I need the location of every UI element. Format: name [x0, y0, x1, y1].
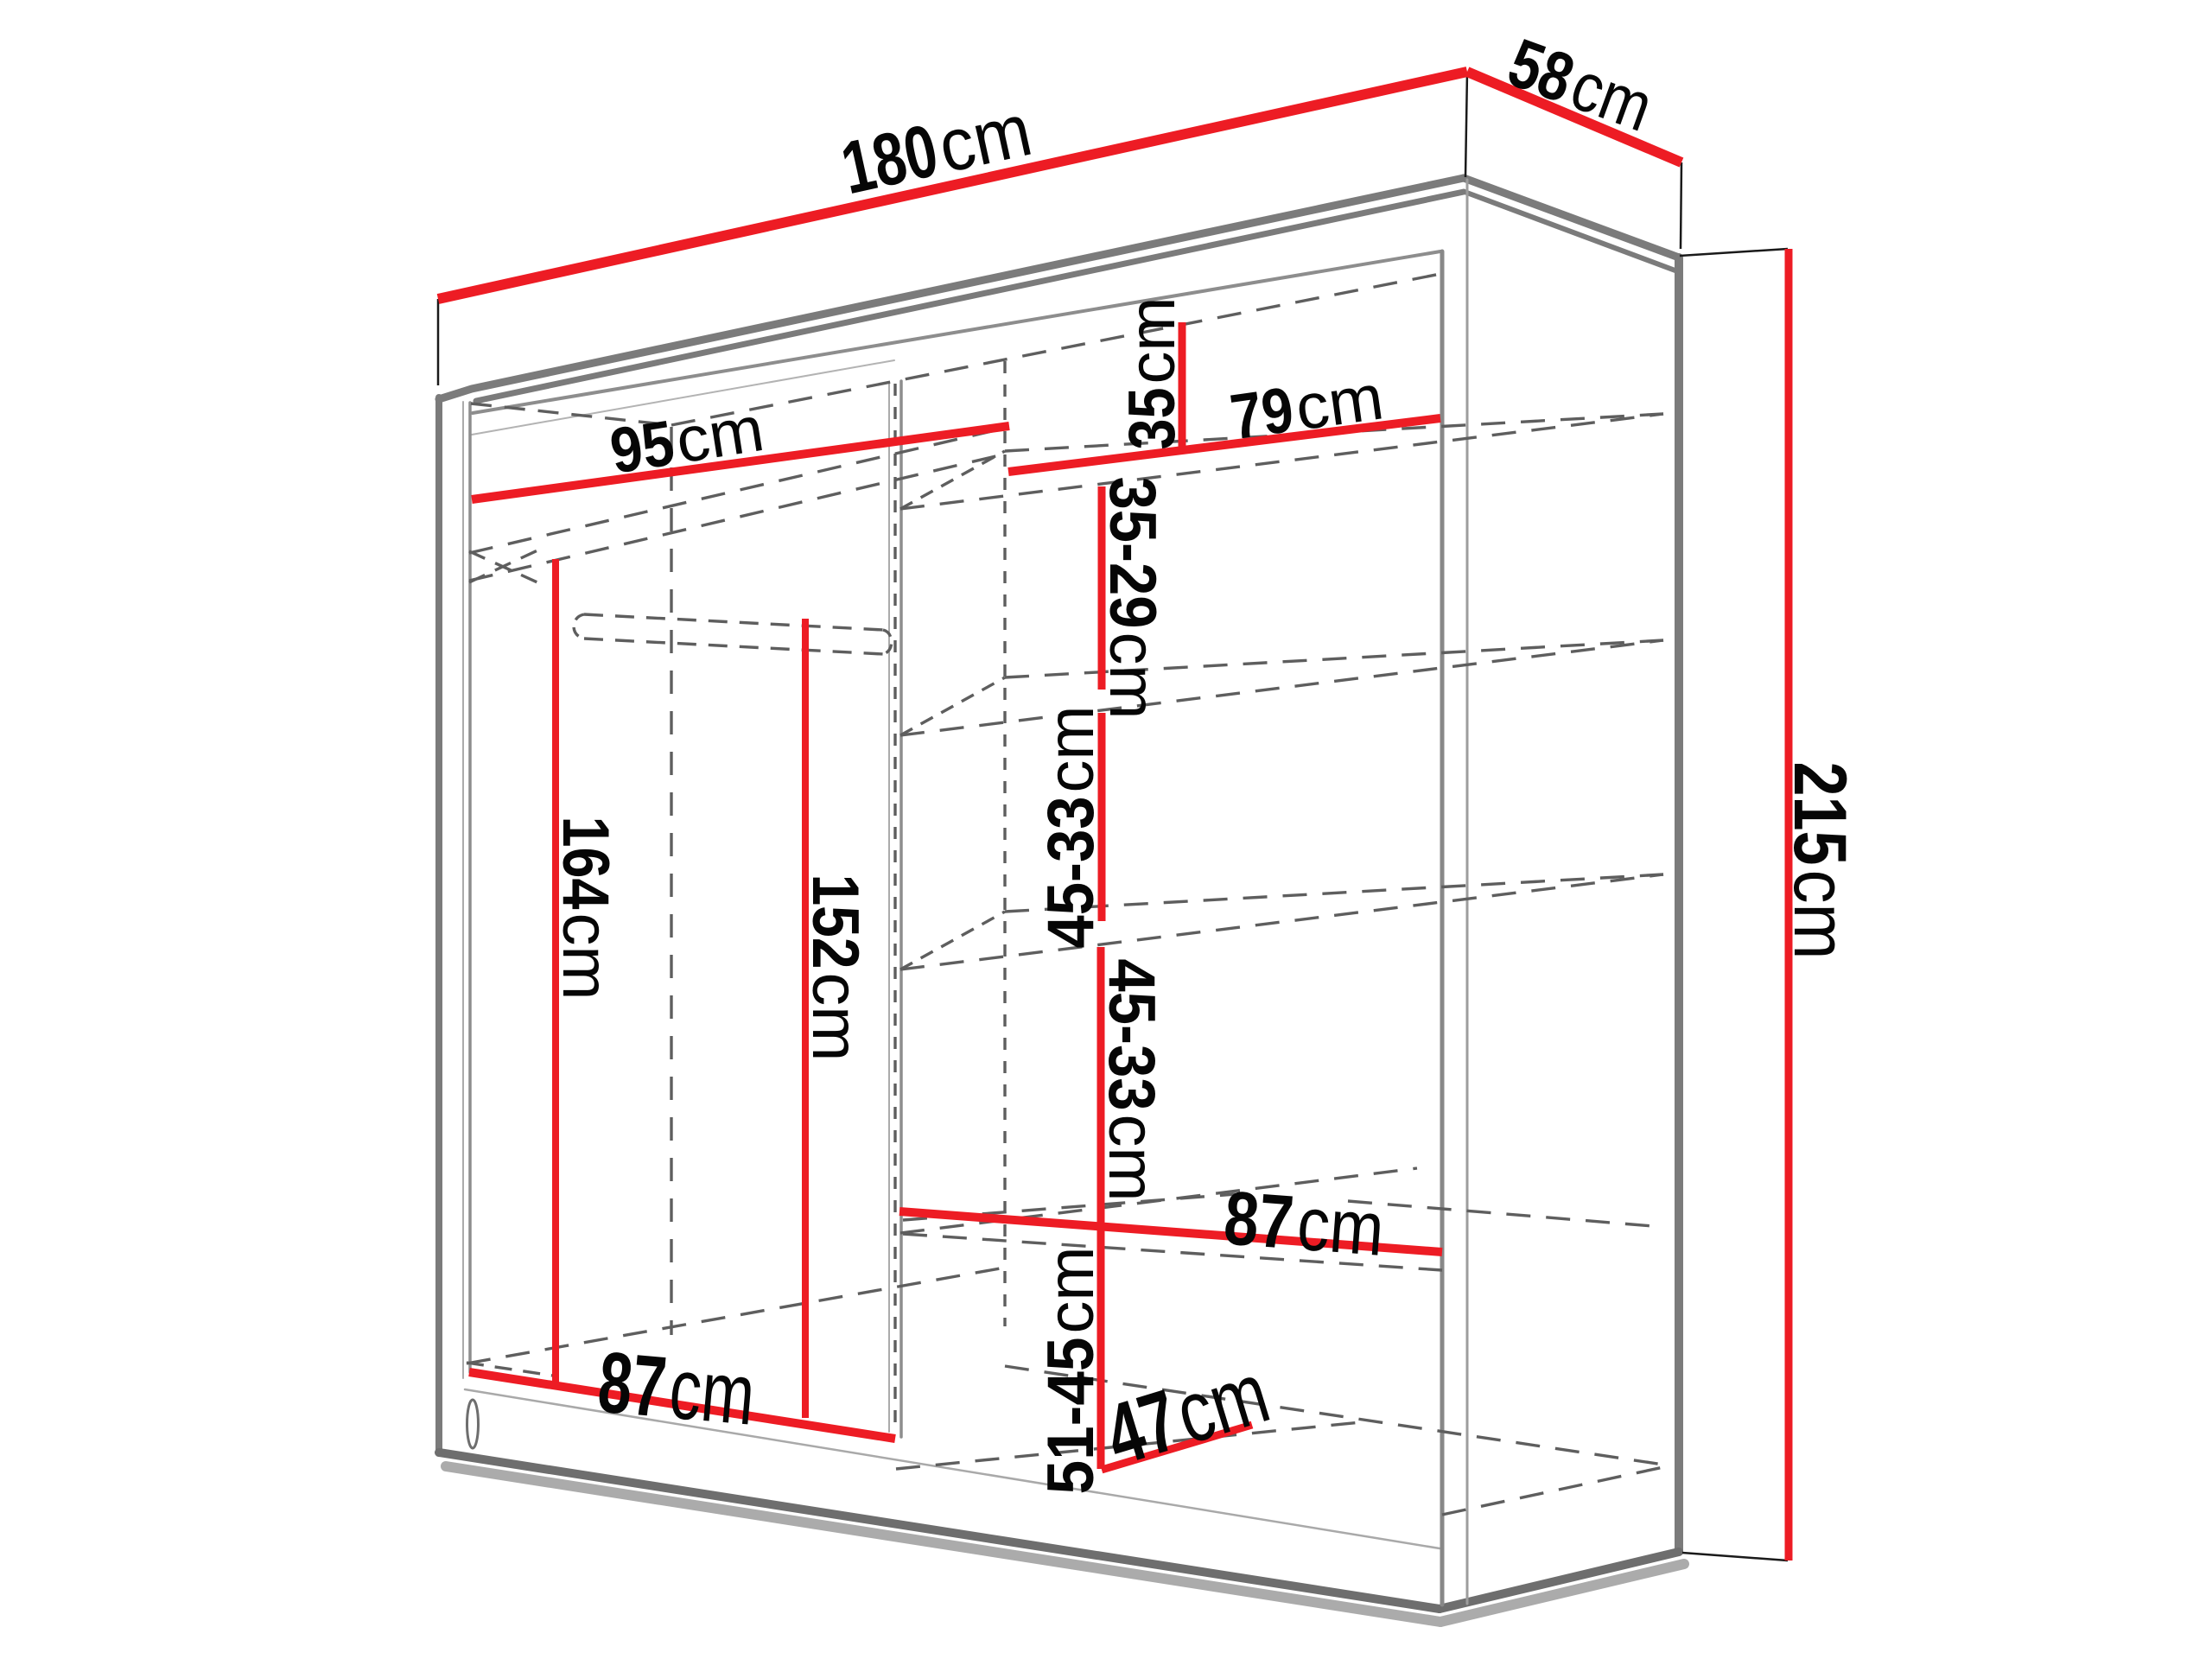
svg-text:87cm: 87cm — [594, 1333, 759, 1443]
svg-text:51-45cm: 51-45cm — [1034, 1247, 1108, 1495]
svg-text:35-29cm: 35-29cm — [1096, 477, 1169, 720]
svg-text:215cm: 215cm — [1778, 762, 1861, 960]
svg-text:164cm: 164cm — [549, 817, 622, 1001]
svg-text:45-33cm: 45-33cm — [1034, 706, 1108, 949]
svg-text:35cm: 35cm — [1116, 297, 1189, 450]
svg-text:152cm: 152cm — [798, 874, 872, 1062]
svg-text:87cm: 87cm — [1221, 1174, 1387, 1272]
svg-text:45-33cm: 45-33cm — [1095, 959, 1168, 1202]
